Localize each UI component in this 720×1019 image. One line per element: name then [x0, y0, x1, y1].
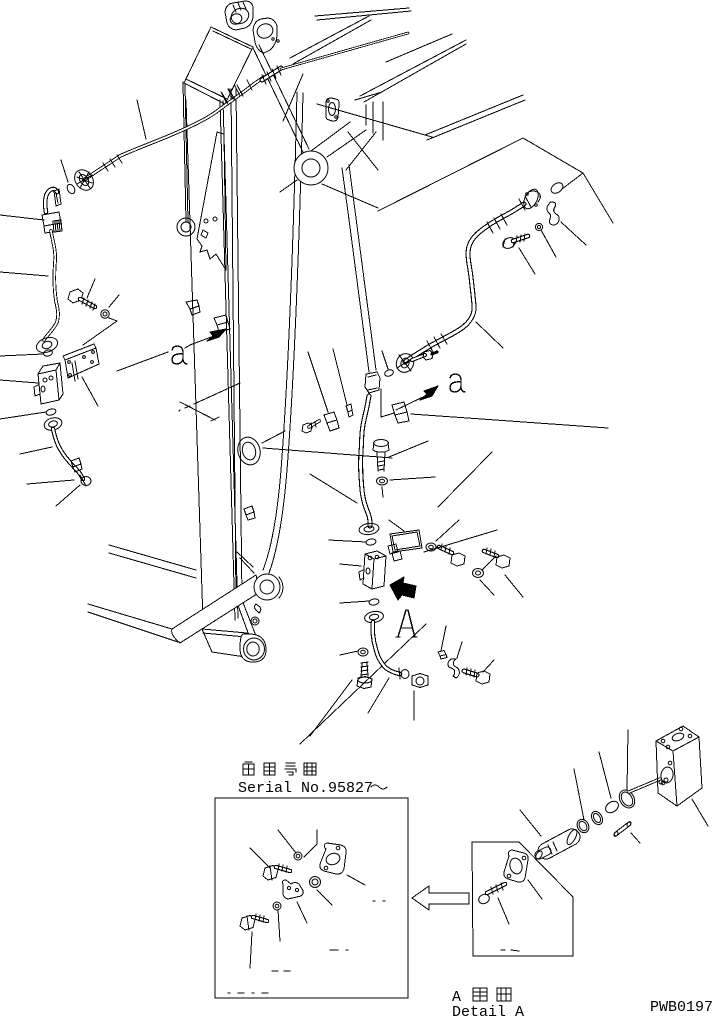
svg-text:PWB0197: PWB0197	[650, 999, 713, 1016]
svg-text:Serial No.95827: Serial No.95827	[238, 780, 373, 797]
svg-text:Detail A: Detail A	[452, 1004, 524, 1019]
svg-text:A: A	[452, 989, 461, 1006]
